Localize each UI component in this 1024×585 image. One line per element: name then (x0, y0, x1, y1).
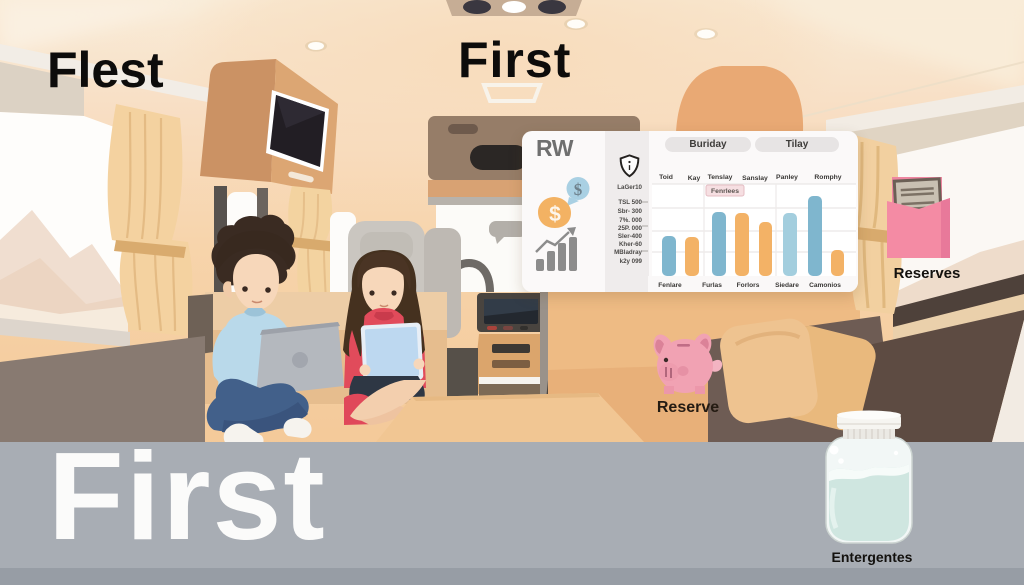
svg-text:Fenrlees: Fenrlees (711, 188, 739, 195)
svg-text:Kay: Kay (688, 175, 701, 182)
svg-text:Forlors: Forlors (737, 282, 760, 289)
svg-text:Camonios: Camonios (809, 282, 841, 289)
svg-text:$: $ (574, 180, 583, 199)
svg-text:Siedare: Siedare (775, 282, 799, 289)
svg-text:Tenslay: Tenslay (708, 174, 733, 181)
svg-text:Romphy: Romphy (814, 174, 841, 181)
svg-text:Fenlare: Fenlare (658, 282, 682, 289)
svg-text:Sanslay: Sanslay (742, 175, 768, 182)
svg-text:Panley: Panley (776, 174, 798, 181)
svg-text:$: $ (549, 203, 561, 226)
svg-text:Toid: Toid (659, 174, 673, 181)
svg-text:Furlas: Furlas (702, 282, 722, 289)
